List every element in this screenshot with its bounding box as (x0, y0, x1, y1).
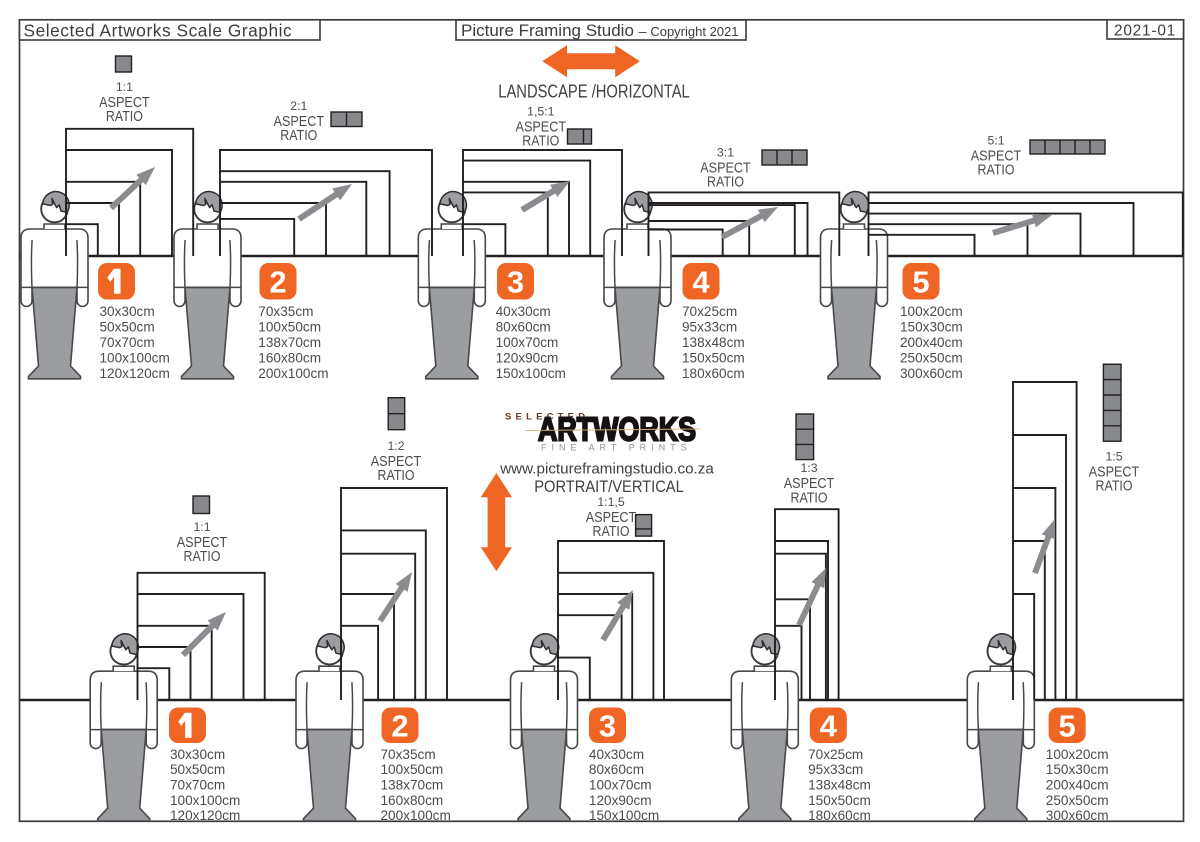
svg-text:100x100cm: 100x100cm (170, 793, 240, 808)
svg-text:1:1: 1:1 (116, 80, 133, 94)
svg-text:Picture Framing Studio – Copyr: Picture Framing Studio – Copyright 2021 (461, 21, 739, 40)
svg-text:1:1,5: 1:1,5 (597, 495, 625, 509)
svg-text:70x70cm: 70x70cm (170, 778, 225, 793)
svg-text:1,5:1: 1,5:1 (527, 105, 555, 119)
svg-text:RATIO: RATIO (522, 134, 559, 150)
svg-text:150x100cm: 150x100cm (496, 366, 566, 381)
svg-text:RATIO: RATIO (707, 175, 744, 191)
svg-text:80x60cm: 80x60cm (496, 320, 551, 335)
svg-text:1:1: 1:1 (193, 520, 210, 534)
svg-text:138x48cm: 138x48cm (682, 335, 745, 350)
svg-text:150x30cm: 150x30cm (1046, 762, 1109, 777)
svg-text:180x60cm: 180x60cm (808, 808, 871, 823)
svg-text:70x35cm: 70x35cm (381, 747, 436, 762)
svg-text:300x60cm: 300x60cm (900, 366, 963, 381)
svg-text:1:5: 1:5 (1105, 450, 1122, 464)
svg-text:50x50cm: 50x50cm (100, 320, 155, 335)
svg-text:100x70cm: 100x70cm (496, 335, 559, 350)
svg-text:3: 3 (507, 265, 524, 300)
svg-text:RATIO: RATIO (280, 128, 317, 144)
svg-text:2:1: 2:1 (290, 99, 307, 113)
svg-text:150x100cm: 150x100cm (589, 808, 659, 823)
svg-text:138x70cm: 138x70cm (258, 335, 321, 350)
svg-text:100x50cm: 100x50cm (258, 320, 321, 335)
svg-text:RATIO: RATIO (1096, 479, 1133, 495)
svg-text:RATIO: RATIO (106, 109, 143, 125)
svg-text:160x80cm: 160x80cm (381, 793, 444, 808)
svg-text:200x40cm: 200x40cm (1046, 778, 1109, 793)
svg-text:RATIO: RATIO (791, 490, 828, 506)
svg-text:Selected Artworks Scale Graphi: Selected Artworks Scale Graphic (24, 20, 293, 40)
svg-text:FINE ART PRINTS: FINE ART PRINTS (541, 443, 692, 453)
svg-text:2: 2 (391, 709, 408, 744)
svg-text:3:1: 3:1 (717, 146, 734, 160)
svg-text:40x30cm: 40x30cm (496, 304, 551, 319)
svg-text:300x60cm: 300x60cm (1046, 808, 1109, 823)
svg-text:2021-01: 2021-01 (1114, 23, 1176, 40)
svg-text:3: 3 (599, 709, 616, 744)
svg-text:www.pictureframingstudio.co.za: www.pictureframingstudio.co.za (499, 461, 714, 478)
svg-text:120x90cm: 120x90cm (496, 351, 559, 366)
svg-text:4: 4 (820, 709, 838, 744)
svg-text:5: 5 (912, 265, 929, 300)
svg-text:150x50cm: 150x50cm (682, 351, 745, 366)
svg-text:RATIO: RATIO (593, 524, 630, 540)
svg-text:100x20cm: 100x20cm (900, 304, 963, 319)
svg-text:PORTRAIT/VERTICAL: PORTRAIT/VERTICAL (534, 477, 684, 496)
svg-text:5: 5 (1058, 709, 1075, 744)
svg-text:LANDSCAPE /HORIZONTAL: LANDSCAPE /HORIZONTAL (498, 81, 690, 101)
svg-text:138x48cm: 138x48cm (808, 778, 871, 793)
svg-text:40x30cm: 40x30cm (589, 747, 644, 762)
svg-text:100x70cm: 100x70cm (589, 778, 652, 793)
svg-text:RATIO: RATIO (378, 468, 415, 484)
svg-text:70x25cm: 70x25cm (808, 747, 863, 762)
svg-text:1:2: 1:2 (387, 439, 404, 453)
svg-text:95x33cm: 95x33cm (682, 320, 737, 335)
svg-text:2: 2 (269, 265, 286, 300)
svg-text:160x80cm: 160x80cm (258, 351, 321, 366)
svg-text:120x120cm: 120x120cm (170, 808, 240, 823)
svg-text:180x60cm: 180x60cm (682, 366, 745, 381)
svg-text:150x50cm: 150x50cm (808, 793, 871, 808)
svg-text:200x100cm: 200x100cm (381, 808, 451, 823)
svg-text:100x100cm: 100x100cm (100, 351, 170, 366)
svg-text:150x30cm: 150x30cm (900, 320, 963, 335)
svg-text:200x40cm: 200x40cm (900, 335, 963, 350)
svg-text:200x100cm: 200x100cm (258, 366, 328, 381)
svg-text:RATIO: RATIO (978, 163, 1015, 179)
svg-text:70x70cm: 70x70cm (100, 335, 155, 350)
svg-text:100x50cm: 100x50cm (381, 762, 444, 777)
svg-text:30x30cm: 30x30cm (170, 747, 225, 762)
svg-text:50x50cm: 50x50cm (170, 762, 225, 777)
svg-text:RATIO: RATIO (184, 549, 221, 565)
svg-text:1:3: 1:3 (800, 461, 817, 475)
svg-text:30x30cm: 30x30cm (100, 304, 155, 319)
svg-text:80x60cm: 80x60cm (589, 762, 644, 777)
svg-text:5:1: 5:1 (987, 134, 1004, 148)
svg-text:250x50cm: 250x50cm (900, 351, 963, 366)
svg-text:250x50cm: 250x50cm (1046, 793, 1109, 808)
svg-text:120x120cm: 120x120cm (100, 366, 170, 381)
svg-text:95x33cm: 95x33cm (808, 762, 863, 777)
svg-text:120x90cm: 120x90cm (589, 793, 652, 808)
svg-text:138x70cm: 138x70cm (381, 778, 444, 793)
svg-text:100x20cm: 100x20cm (1046, 747, 1109, 762)
svg-text:4: 4 (692, 265, 710, 300)
svg-text:70x35cm: 70x35cm (258, 304, 313, 319)
svg-text:70x25cm: 70x25cm (682, 304, 737, 319)
